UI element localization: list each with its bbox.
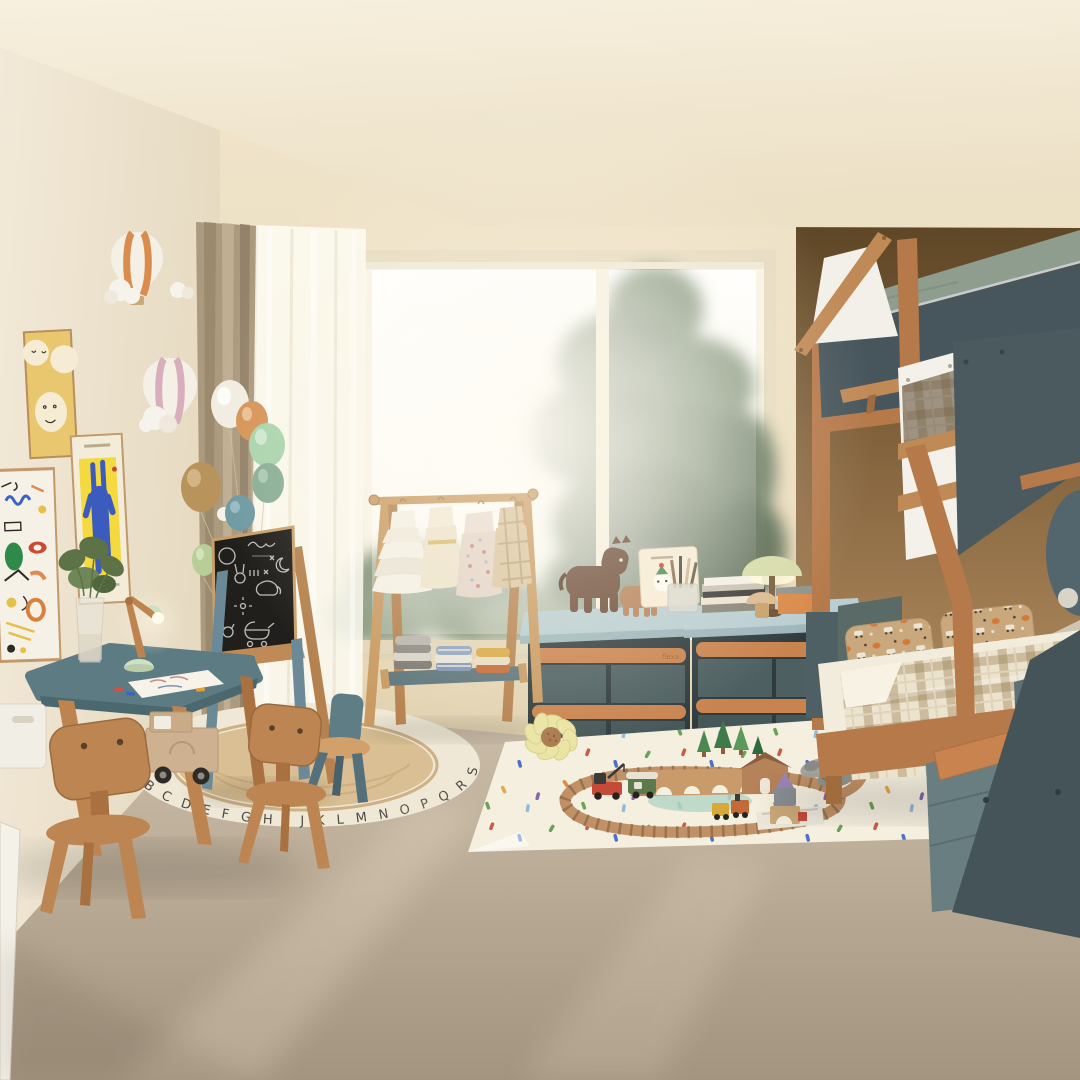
white-storage-bin — [0, 704, 46, 768]
room-illustration: A B C D E F G H I J K L M N O P Q R S T … — [0, 0, 1080, 1080]
bed-leg — [826, 776, 842, 804]
crayon — [196, 688, 205, 692]
window-glow — [215, 100, 875, 760]
kids-room-render: A B C D E F G H I J K L M N O P Q R S T … — [0, 0, 1080, 1080]
chair-backrest — [47, 716, 152, 803]
chair-backrest — [247, 703, 323, 768]
doodle-poster — [0, 467, 62, 663]
